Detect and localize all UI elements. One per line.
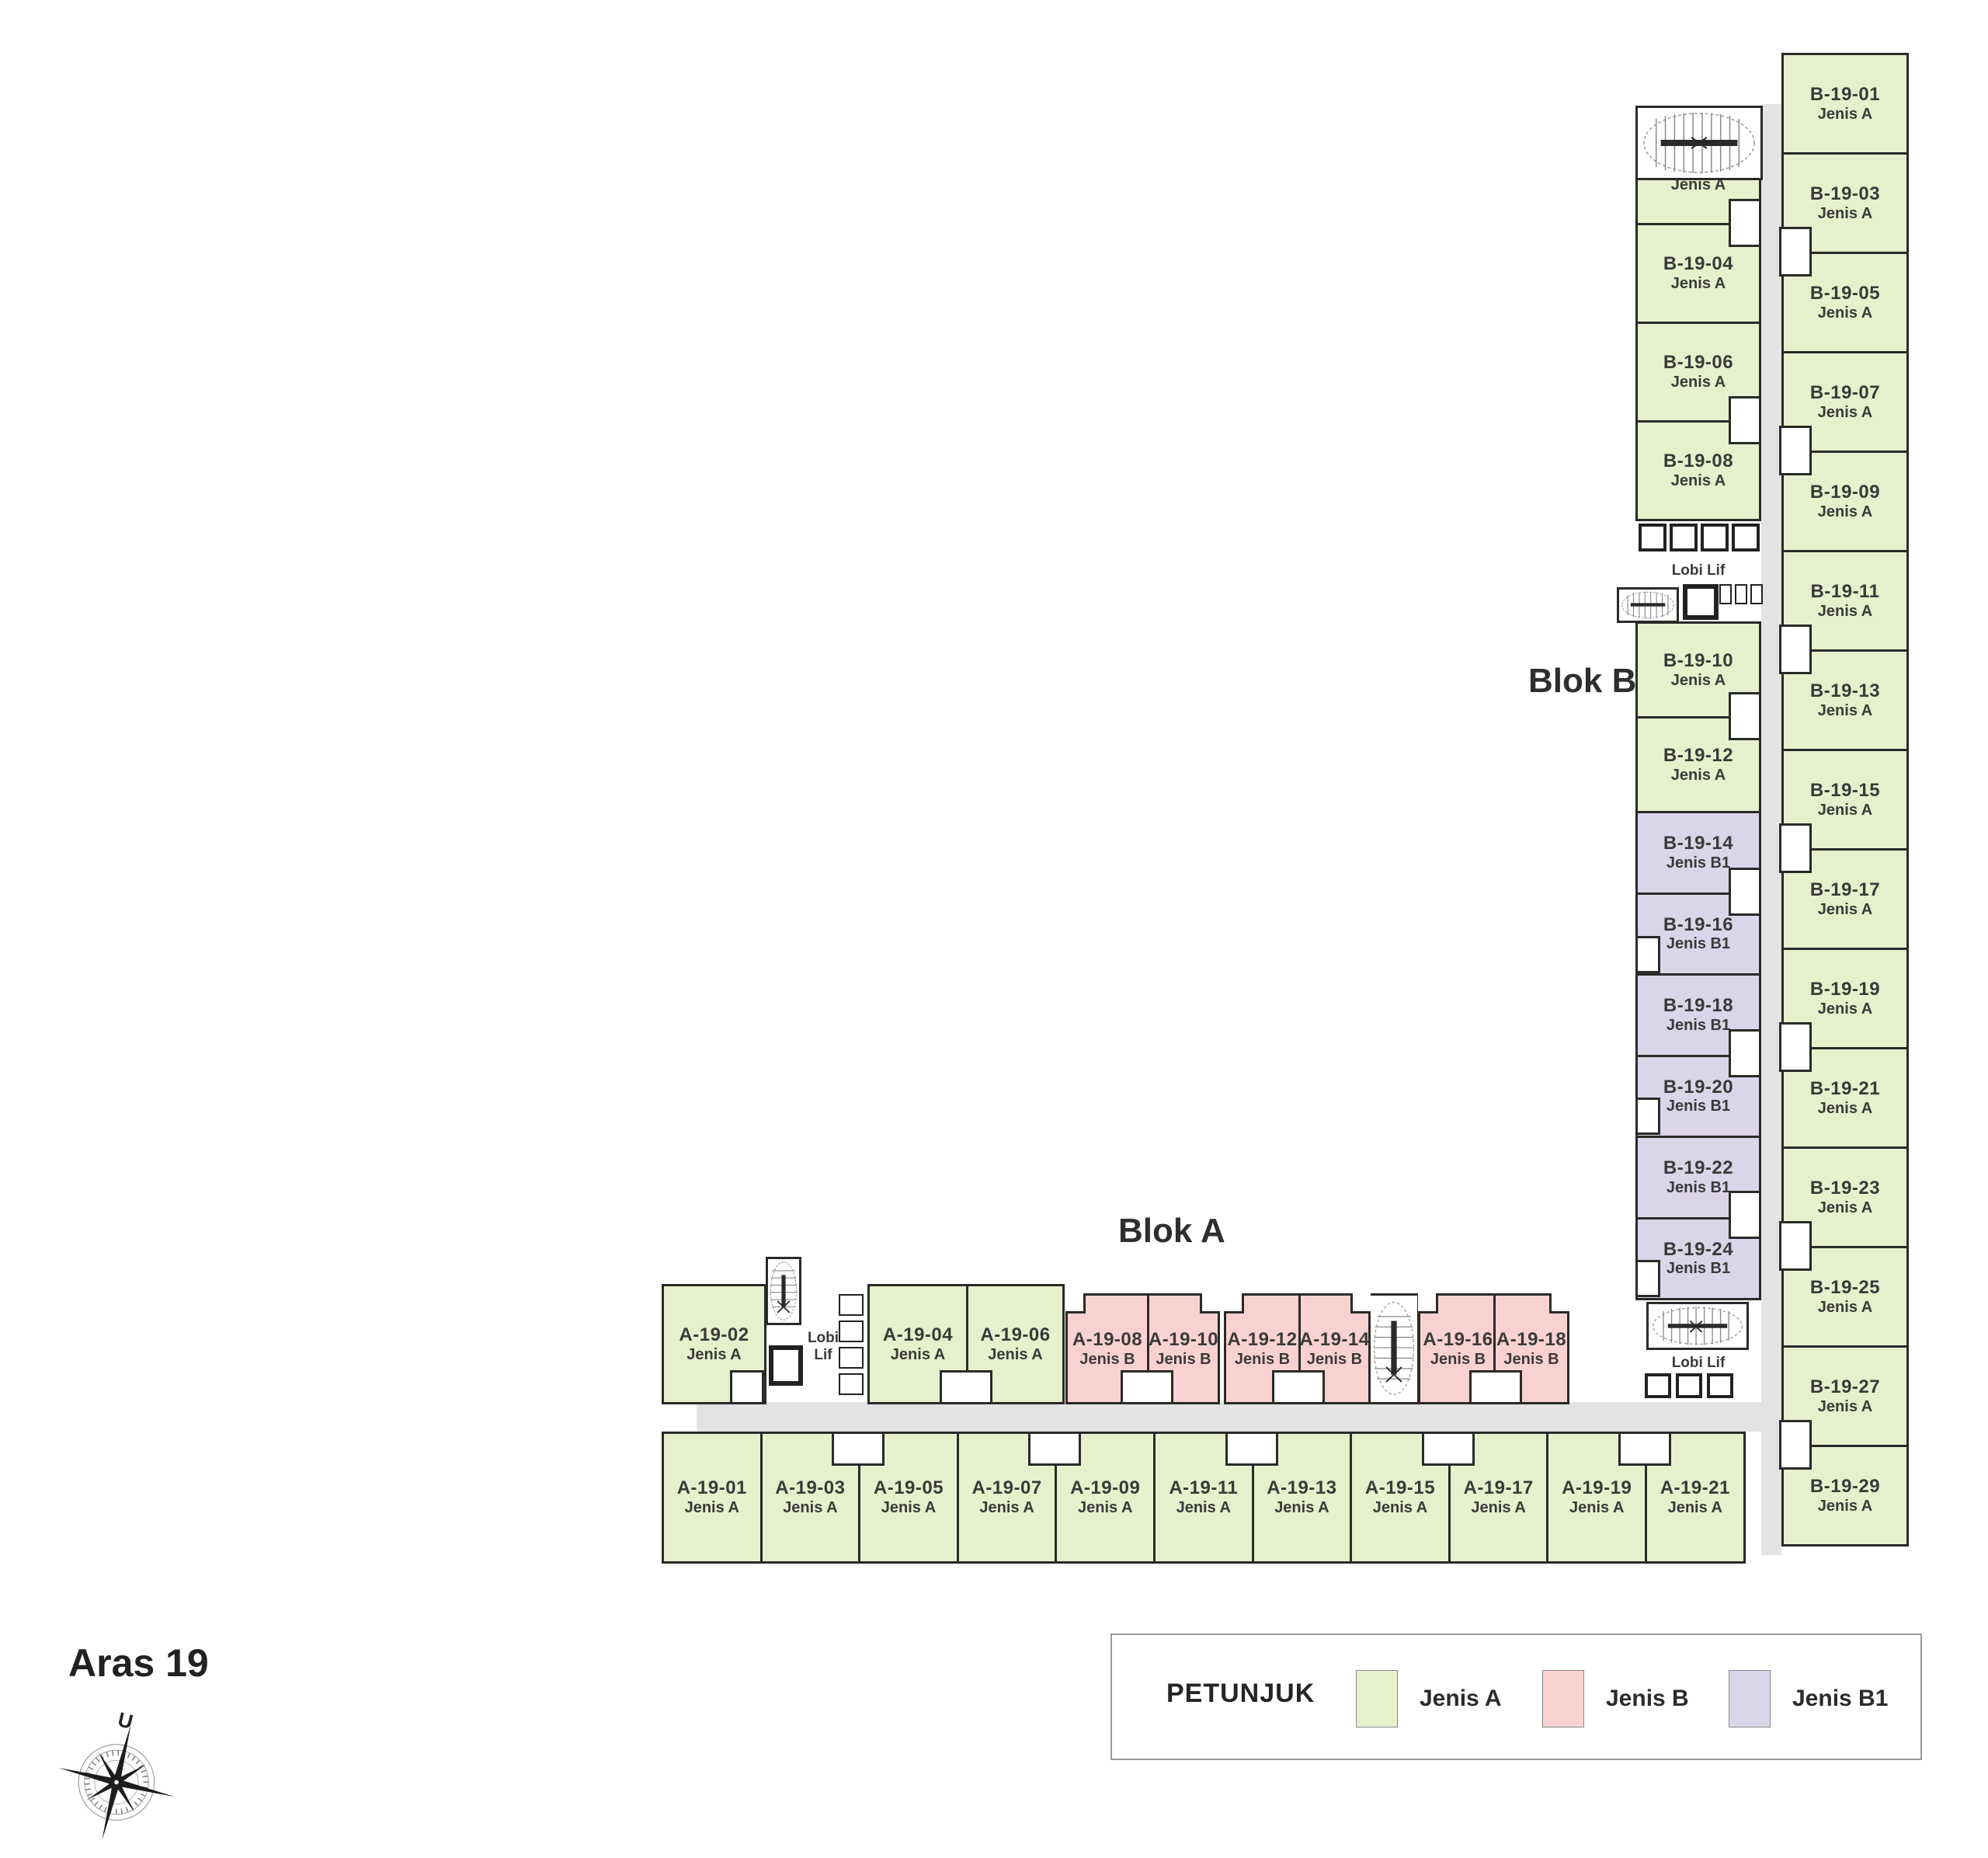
unit-id: A-19-08 [1072,1330,1142,1351]
legend-label: Jenis A [1420,1686,1502,1712]
entry-notch [1729,692,1761,740]
lobby-label-blok-a: Lobi Lif [803,1330,843,1364]
unit-id: B-19-06 [1663,353,1733,374]
lift-shaft [1645,1373,1671,1398]
unit-id: B-19-27 [1810,1377,1880,1398]
unit-type: Jenis B [1156,1351,1211,1368]
corner-step [1549,1293,1569,1313]
unit-type: Jenis A [1818,901,1872,918]
unit-type: Jenis A [1818,1000,1872,1018]
unit-id: B-19-25 [1810,1278,1880,1299]
unit-type: Jenis A [1818,802,1872,819]
legend-swatch [1729,1670,1771,1728]
unit-type: Jenis A [1569,1499,1624,1516]
unit-id: A-19-07 [971,1478,1041,1499]
unit-id: B-19-23 [1810,1178,1880,1199]
unit-type: Jenis A [1818,702,1872,719]
unit-id: B-19-14 [1663,833,1733,854]
unit-type: Jenis A [1818,304,1872,322]
entry-notch [1121,1370,1173,1404]
corner-step [1418,1293,1438,1313]
unit-type: Jenis B1 [1667,854,1730,872]
lift-shaft [1676,1373,1702,1398]
entry-notch [1779,1420,1812,1470]
unit-type: Jenis A [686,1346,741,1363]
unit-id: B-19-03 [1810,184,1880,205]
unit-type: Jenis A [1818,1398,1872,1415]
unit-id: A-19-06 [980,1325,1050,1346]
unit-type: Jenis B1 [1667,935,1730,952]
unit-type: Jenis A [1471,1499,1525,1516]
unit-id: A-19-15 [1365,1478,1435,1499]
unit-id: B-19-01 [1810,85,1880,106]
unit-type: Jenis A [1818,1100,1872,1117]
corner-step [1065,1293,1086,1313]
entry-notch [1779,426,1812,475]
lift-shaft [839,1294,864,1316]
unit-id: A-19-05 [874,1478,944,1499]
entry-notch [1779,1221,1812,1271]
entry-notch [1779,625,1812,674]
entry-notch [1729,199,1761,247]
lift-shaft [1670,524,1698,551]
corner-step [1200,1293,1220,1313]
floor-plan: Lobi Lif Lobi Lif Lobi Lif Blok B Blok A… [0,0,1988,1858]
unit-id: B-19-20 [1663,1077,1733,1098]
unit-id: B-19-09 [1810,482,1880,503]
unit-id: B-19-29 [1810,1477,1880,1498]
unit-type: Jenis B [1235,1351,1290,1368]
compass-icon [58,1714,175,1839]
unit-type: Jenis A [1818,1299,1872,1316]
unit-type: Jenis A [1671,672,1726,689]
unit-id: B-19-17 [1810,880,1880,901]
legend-item-jenis-b: Jenis B [1542,1635,1689,1762]
lift-shaft [769,1345,803,1386]
entry-notch [832,1432,885,1466]
entry-notch [1729,1029,1761,1077]
entry-notch [1028,1432,1081,1466]
lift-shaft [1719,584,1732,604]
legend-swatch [1542,1670,1584,1728]
unit-id: B-19-21 [1810,1079,1880,1100]
unit-type: Jenis A [783,1499,837,1516]
unit-type: Jenis A [1671,472,1726,489]
unit-type: Jenis B1 [1667,1098,1730,1115]
stairs-icon [1646,1302,1749,1350]
unit-id: B-19-18 [1663,996,1733,1017]
entry-notch [1729,1191,1761,1239]
unit-id: A-19-12 [1227,1330,1297,1351]
unit-type: Jenis A [1671,767,1726,784]
unit-id: B-19-12 [1663,746,1733,767]
unit-type: Jenis B [1307,1351,1362,1368]
unit-type: Jenis A [1671,275,1726,292]
lift-shaft [1707,1373,1733,1398]
unit-type: Jenis A [1671,374,1726,391]
unit-type: Jenis A [1818,503,1872,520]
unit-type: Jenis A [1818,603,1872,620]
unit-id: B-19-08 [1663,451,1733,472]
entry-notch [1729,868,1761,916]
entry-notch [1635,936,1660,973]
lift-shaft [1732,524,1760,551]
unit-type: Jenis A [1818,106,1872,123]
stairs-icon [1635,106,1763,180]
unit-A-19-01: A-19-01Jenis A [662,1432,763,1564]
unit-type: Jenis B1 [1667,1179,1730,1196]
unit-id: A-19-01 [677,1478,747,1499]
unit-B-19-01: B-19-01Jenis A [1781,53,1909,155]
unit-type: Jenis A [988,1346,1042,1363]
legend-label: Jenis B [1606,1686,1689,1712]
entry-notch [940,1370,992,1404]
unit-type: Jenis A [1818,205,1872,222]
entry-notch [1272,1370,1325,1404]
stairs-icon [1368,1293,1420,1404]
unit-type: Jenis A [1818,404,1872,421]
entry-notch [1729,396,1761,444]
lift-shaft [839,1373,864,1395]
unit-type: Jenis B1 [1667,1260,1730,1277]
lift-shaft [1683,584,1719,620]
unit-id: A-19-09 [1070,1478,1140,1499]
corner-step [1224,1293,1244,1313]
lobby-label-blok-b-lower: Lobi Lif [1650,1355,1746,1372]
lift-shaft [1735,584,1747,604]
legend-title: PETUNJUK [1166,1679,1315,1709]
legend-item-jenis-a: Jenis A [1356,1635,1502,1762]
entry-notch [1779,1022,1812,1072]
lift-shaft [1639,524,1667,551]
unit-id: B-19-22 [1663,1158,1733,1179]
unit-id: A-19-04 [883,1325,953,1346]
unit-type: Jenis A [1176,1499,1231,1516]
unit-type: Jenis A [1818,1199,1872,1216]
corner-step [1350,1293,1371,1313]
lift-shaft [1701,524,1729,551]
unit-id: A-19-10 [1149,1330,1218,1351]
unit-type: Jenis A [1668,1499,1722,1516]
page-title: Aras 19 [68,1641,209,1686]
entry-notch [1635,1260,1660,1297]
blok-b-label: Blok B [1528,662,1636,701]
unit-id: A-19-18 [1496,1330,1566,1351]
lift-shaft [1750,584,1763,604]
unit-id: A-19-16 [1423,1330,1493,1351]
unit-type: Jenis B [1079,1351,1135,1368]
unit-type: Jenis A [1818,1498,1872,1515]
unit-type: Jenis B [1503,1351,1559,1368]
corridor-blok-a [697,1402,1781,1432]
entry-notch [730,1370,764,1404]
unit-id: B-19-04 [1663,254,1733,275]
unit-type: Jenis A [1373,1499,1427,1516]
unit-id: A-19-19 [1562,1478,1632,1499]
unit-id: B-19-07 [1810,383,1880,404]
entry-notch [1422,1432,1475,1466]
unit-id: B-19-11 [1811,582,1880,603]
blok-a-label: Blok A [1118,1212,1225,1251]
legend-swatch [1356,1670,1398,1728]
unit-id: B-19-19 [1810,979,1880,1000]
stairs-icon [1617,587,1679,623]
unit-type: Jenis B [1430,1351,1486,1368]
unit-id: A-19-17 [1463,1478,1533,1499]
unit-id: B-19-05 [1810,284,1880,304]
unit-type: Jenis B1 [1667,1017,1730,1034]
unit-type: Jenis A [1078,1499,1132,1516]
unit-id: A-19-21 [1660,1478,1730,1499]
unit-id: B-19-10 [1663,651,1733,672]
unit-type: Jenis A [881,1499,936,1516]
unit-id: B-19-15 [1810,781,1880,802]
unit-id: B-19-13 [1810,681,1880,702]
unit-id: A-19-14 [1299,1330,1369,1351]
entry-notch [1469,1370,1522,1404]
entry-notch [1779,823,1812,873]
unit-id: A-19-11 [1169,1478,1238,1499]
stairs-icon [766,1257,801,1325]
legend: PETUNJUK Jenis AJenis BJenis B1 [1110,1634,1922,1760]
entry-notch [1779,227,1812,277]
unit-type: Jenis A [891,1346,945,1363]
unit-id: A-19-13 [1267,1478,1336,1499]
unit-id: A-19-03 [775,1478,845,1499]
entry-notch [1225,1432,1278,1466]
entry-notch [1635,1098,1660,1135]
legend-item-jenis-b1: Jenis B1 [1729,1635,1888,1762]
unit-type: Jenis A [979,1499,1034,1516]
unit-type: Jenis A [1274,1499,1329,1516]
unit-id: B-19-16 [1663,915,1733,936]
entry-notch [1618,1432,1671,1466]
lobby-label-blok-b-upper: Lobi Lif [1650,562,1746,579]
legend-label: Jenis B1 [1792,1686,1888,1712]
unit-type: Jenis A [685,1499,739,1516]
unit-id: A-19-02 [679,1325,749,1346]
unit-id: B-19-24 [1663,1240,1733,1261]
